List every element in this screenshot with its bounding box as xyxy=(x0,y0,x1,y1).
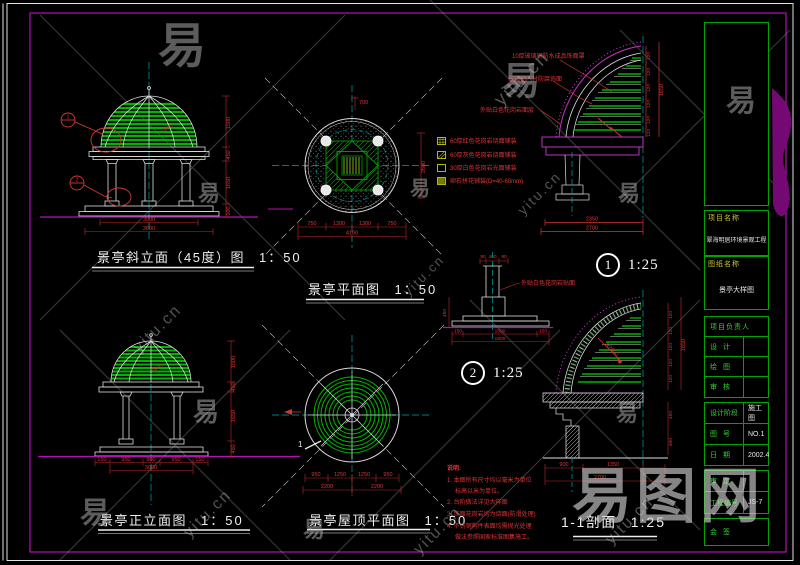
dim-label: 450 xyxy=(668,411,674,419)
dim-label: 120 xyxy=(668,327,674,335)
section-1-1-drawing: R2600 120 120 120 120 120 1650 450 600 9… xyxy=(543,290,687,540)
title-scale: 1：50 xyxy=(259,250,302,265)
plan-drawing: 750 1300 1300 750 4100 2600 700 xyxy=(265,78,442,303)
note-line: 2. 台阶做法详见大样图 xyxy=(447,497,508,506)
dim-label: 950 xyxy=(171,457,180,463)
table-row: 项目负责人 xyxy=(705,317,768,337)
dim-label: 150 xyxy=(454,329,462,335)
detail-2-drawing: 90 400 90 150 1500 150 1800 450 xyxy=(442,252,553,345)
row-label: 审 定 xyxy=(705,476,743,486)
title-scale: 1：50 xyxy=(201,513,244,528)
detail-scale: 1:25 xyxy=(628,257,659,274)
row-value: NO.1 xyxy=(743,424,768,444)
detail-1-badge: 1 1:25 xyxy=(596,253,659,277)
dim-label: 400 xyxy=(488,254,496,260)
dim-label: 700 xyxy=(359,100,368,106)
legend-item: 30厚白色花岗岩光面铺装 xyxy=(437,163,517,172)
dim-label: 2200 xyxy=(371,484,383,490)
title-block-project-box: 项目名称 翠海明居环境景观工程 xyxy=(704,210,769,256)
legend-item: 60厚红色花岗岩烧面铺装 xyxy=(437,136,517,145)
dim-label: 2350 xyxy=(586,217,598,223)
sheet-name-label: 图纸名称 xyxy=(708,259,740,269)
cad-sheet: 1 2 2600 1500 450 1650 500 3000 3600 xyxy=(0,0,800,565)
title-block-staff-table: 项目负责人 设 计 绘 图 审 核 xyxy=(704,316,769,398)
dim-label: 1650 xyxy=(659,84,665,96)
grid-swatch-icon xyxy=(437,177,446,185)
dim-label: 1500 xyxy=(226,117,232,129)
legend-item: 卵石拼花铺装(D=40-60mm) xyxy=(437,176,523,185)
table-row: 图 号 NO.1 xyxy=(705,424,768,445)
row-label: 设 计 xyxy=(705,342,743,352)
dim-label: 1800 xyxy=(495,336,506,342)
dim-label: 120 xyxy=(668,359,674,367)
title-text: 景亭平面图 xyxy=(308,282,381,297)
title-block-stage-table: 设计阶段 施工图 图 号 NO.1 日 期 2002.4 xyxy=(704,402,769,466)
dim-label: 2700 xyxy=(594,475,606,481)
table-row: 绘 图 xyxy=(705,357,768,377)
dim-label: 150 xyxy=(195,457,204,463)
dim-label: 120 xyxy=(668,343,674,351)
louvers xyxy=(574,58,641,130)
dim-label: 120 xyxy=(646,68,652,76)
dim-label: 2700 xyxy=(586,226,598,232)
title-text: 景亭正立面图 xyxy=(100,513,187,528)
dim-label: 1650 xyxy=(231,410,237,422)
callout-dome-cover: 10厚玻璃钢防水成品饰面罩 xyxy=(512,51,585,60)
dim-label: 90 xyxy=(480,254,486,260)
notes-heading: 说明: xyxy=(447,463,461,472)
dim-label: 150 xyxy=(539,329,547,335)
callout-dome-lining: 玻璃钢内衬防腐饰面 xyxy=(508,74,562,83)
dim-label: 3600 xyxy=(143,226,155,232)
dim-label: 120 xyxy=(646,84,652,92)
title-block-logo-box xyxy=(704,22,769,206)
title-oblique-elevation: 景亭斜立面（45度）图1：50 xyxy=(97,247,302,266)
dim-label: 1650 xyxy=(226,177,232,189)
dim-label: 120 xyxy=(646,100,652,108)
detail-scale: 1:25 xyxy=(493,365,524,382)
row-label: 绘 图 xyxy=(705,362,743,372)
dim-label: 90 xyxy=(501,254,507,260)
dim-label: 950 xyxy=(383,472,392,478)
title-section-1-1: 1-1剖面1:25 xyxy=(561,512,666,532)
table-row: 审 定 xyxy=(705,471,768,492)
row-value: 2002.4 xyxy=(743,445,769,465)
dim-label: 2200 xyxy=(321,484,333,490)
legend-item: 60厚灰色花岗岩烧面铺装 xyxy=(437,150,517,159)
dim-label: 120 xyxy=(646,52,652,60)
title-block-sheet-box: 图纸名称 景亭大样图 xyxy=(704,256,769,310)
dim-label: 1300 xyxy=(333,221,345,227)
title-scale: 1:25 xyxy=(631,514,666,530)
title-roof-plan: 景亭屋顶平面图1：50 xyxy=(309,510,467,529)
project-name: 翠海明居环境景观工程 xyxy=(705,235,768,244)
decorative-purple-blob xyxy=(772,88,791,216)
dim-label: 600 xyxy=(668,438,674,446)
dim-label: 1500 xyxy=(495,329,506,335)
dim-label: 750 xyxy=(307,221,316,227)
dim-label: 150 xyxy=(97,457,106,463)
row-label: 工程编号 xyxy=(705,498,743,508)
dim-label: 450 xyxy=(442,309,448,317)
note-line: 1. 本图所有尺寸均以毫米为单位 xyxy=(447,475,532,484)
section-cut-label: 1 xyxy=(298,440,303,449)
dim-label: 500 xyxy=(226,206,232,215)
title-text: 景亭屋顶平面图 xyxy=(309,513,411,528)
note-line: 3. 饰面花岗岩均为烧面(防滑处理) xyxy=(447,509,536,518)
dim-label: 2 xyxy=(76,178,79,184)
note-line: 标高以米为单位。 xyxy=(455,486,503,495)
dim-label: 120 xyxy=(646,129,652,137)
dim-label: 750 xyxy=(387,221,396,227)
dim-label: 900 xyxy=(559,462,568,468)
legend-label: 30厚白色花岗岩光面铺装 xyxy=(450,163,517,172)
dim-label: 1250 xyxy=(334,472,346,478)
callout-base-granite: 外贴白色花岗岩贴面 xyxy=(521,278,575,287)
title-front-elevation: 景亭正立面图1：50 xyxy=(100,510,244,529)
dim-label: 3000 xyxy=(145,465,157,471)
row-value xyxy=(743,357,768,376)
row-label: 图 号 xyxy=(705,429,743,439)
dim-label: 1 xyxy=(67,115,70,121)
title-block-sign-box: 会 签 xyxy=(704,518,769,546)
legend-label: 60厚红色花岗岩烧面铺装 xyxy=(450,136,517,145)
dim-label: 800 xyxy=(146,457,155,463)
legend-label: 卵石拼花铺装(D=40-60mm) xyxy=(450,176,523,185)
roof-spokes xyxy=(308,371,396,459)
dim-label: 1650 xyxy=(681,339,687,351)
detail-1-drawing: 120 120 120 120 120 120 1650 2350 2700 xyxy=(540,36,665,235)
title-scale: 1：50 xyxy=(395,282,438,297)
row-value xyxy=(743,471,768,491)
project-name-label: 项目名称 xyxy=(708,213,740,223)
front-elevation-drawing: 2600 1500 450 1650 450 150 950 800 950 1… xyxy=(38,334,300,534)
table-row: 设 计 xyxy=(705,337,768,357)
row-value xyxy=(743,337,768,356)
detail-number-circle: 2 xyxy=(461,361,485,385)
row-label: 项目负责人 xyxy=(705,322,750,332)
table-row: 审 核 xyxy=(705,377,768,397)
dim-label: 4100 xyxy=(346,231,358,237)
dim-label: 450 xyxy=(226,150,232,159)
table-row: 会 签 xyxy=(705,519,768,545)
row-label: 审 核 xyxy=(705,382,743,392)
note-line: 4. 不锈钢构件表面均需抛光处理 xyxy=(447,521,532,530)
dim-label: 450 xyxy=(231,444,237,453)
title-text: 1-1剖面 xyxy=(561,514,617,530)
detail-number-circle: 1 xyxy=(596,253,620,277)
row-label: 会 签 xyxy=(705,527,743,537)
callout-granite-face: 外贴白色花岗岩面层 xyxy=(480,105,534,114)
row-value: JS-7 xyxy=(743,492,768,513)
dim-label: 120 xyxy=(646,116,652,124)
legend-label: 60厚灰色花岗岩烧面铺装 xyxy=(450,150,517,159)
dim-label: 450 xyxy=(231,382,237,391)
dim-label: 950 xyxy=(121,457,130,463)
title-plan: 景亭平面图1：50 xyxy=(308,279,437,298)
table-row: 设计阶段 施工图 xyxy=(705,403,768,424)
dim-label: 1300 xyxy=(359,221,371,227)
row-label: 设计阶段 xyxy=(705,408,743,418)
dim-label: 2600 xyxy=(421,161,427,173)
note-line: 做法参照国家标准图集施工。 xyxy=(455,532,533,541)
title-block-approval-table: 审 定 工程编号 JS-7 xyxy=(704,470,769,514)
dim-label: 1500 xyxy=(231,356,237,368)
row-value: 施工图 xyxy=(743,403,768,423)
table-row: 日 期 2002.4 xyxy=(705,445,768,465)
table-row: 工程编号 JS-7 xyxy=(705,492,768,513)
roof-plan-drawing: 1 950 1250 1250 950 2200 2200 xyxy=(262,325,444,533)
dim-label: 120 xyxy=(668,375,674,383)
title-text: 景亭斜立面（45度）图 xyxy=(97,250,245,265)
dim-label: 1350 xyxy=(607,462,619,468)
oblique-elevation-drawing: 1 2 2600 1500 450 1650 500 3000 3600 xyxy=(40,62,258,271)
dim-label: 120 xyxy=(668,311,674,319)
crosshatch-swatch-icon xyxy=(437,137,446,145)
row-label: 日 期 xyxy=(705,450,743,460)
dim-label: 3000 xyxy=(143,217,155,223)
dim-label: 950 xyxy=(311,472,320,478)
sheet-name: 景亭大样图 xyxy=(705,285,768,295)
row-value xyxy=(743,377,768,397)
diagonal-hatch-swatch-icon xyxy=(437,151,446,159)
dim-label: 1250 xyxy=(358,472,370,478)
empty-swatch-icon xyxy=(437,164,446,172)
detail-2-badge: 2 1:25 xyxy=(461,361,524,385)
